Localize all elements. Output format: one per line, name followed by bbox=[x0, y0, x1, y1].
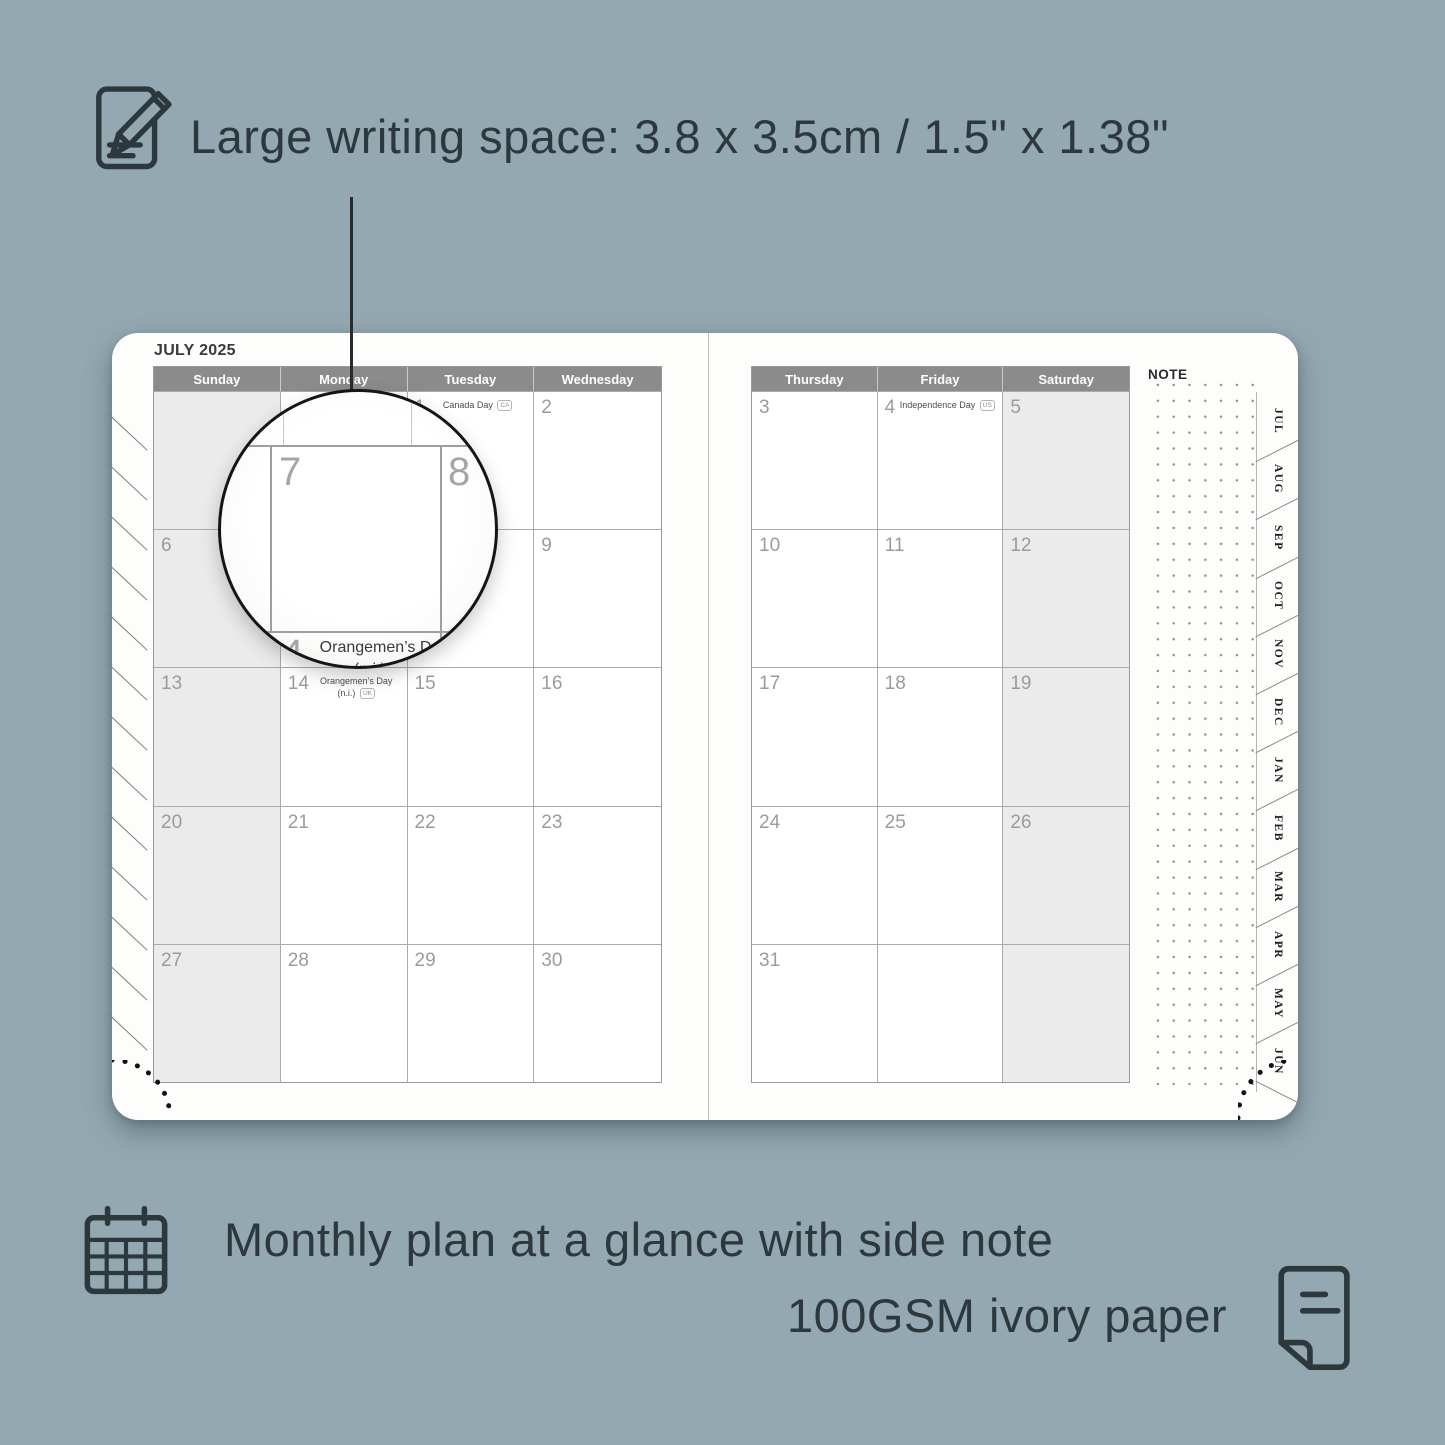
hatch-line bbox=[107, 963, 147, 1001]
grid-line bbox=[411, 392, 412, 445]
day-number: 15 bbox=[415, 673, 436, 695]
magnified-cell-border bbox=[440, 445, 442, 669]
day-cell: 12 bbox=[1003, 530, 1129, 667]
week-row: 171819 bbox=[752, 667, 1129, 805]
day-number: 5 bbox=[1010, 397, 1021, 419]
day-cell: 23 bbox=[534, 807, 661, 944]
hatch-line bbox=[107, 863, 147, 901]
day-number: 23 bbox=[541, 812, 562, 834]
weekday-header-row: ThursdayFridaySaturday bbox=[752, 367, 1129, 391]
hatch-line bbox=[107, 613, 147, 651]
month-tab-strip: JULAUGSEPOCTNOVDECJANFEBMARAPRMAYJUN bbox=[1256, 392, 1299, 1092]
magnified-day-8: 8 bbox=[448, 452, 470, 492]
hatch-line bbox=[107, 513, 147, 551]
day-cell: 29 bbox=[408, 945, 535, 1082]
hatch-line bbox=[107, 663, 147, 701]
day-cell: 2 bbox=[534, 392, 661, 529]
day-cell: 3 bbox=[752, 392, 878, 529]
week-row: 34Independence Day US5 bbox=[752, 391, 1129, 529]
day-number: 19 bbox=[1010, 673, 1031, 695]
day-cell: 9 bbox=[534, 530, 661, 667]
page-fold-line bbox=[708, 333, 709, 1120]
holiday-label: Orangemen’s Day (n.i.) UK bbox=[313, 676, 400, 699]
day-number: 27 bbox=[161, 950, 182, 972]
hatch-line bbox=[107, 463, 147, 501]
month-tab-feb: FEB bbox=[1257, 799, 1299, 857]
day-cell: 27 bbox=[154, 945, 281, 1082]
magnified-day-7: 7 bbox=[279, 452, 301, 492]
day-cell: 10 bbox=[752, 530, 878, 667]
stitch-arc-left bbox=[112, 1060, 172, 1120]
hatch-line bbox=[107, 563, 147, 601]
hatch-line bbox=[107, 713, 147, 751]
day-number: 6 bbox=[161, 535, 172, 557]
hatch-line bbox=[107, 913, 147, 951]
day-number: 9 bbox=[541, 535, 552, 557]
country-badge: UK bbox=[360, 688, 375, 699]
day-number: 17 bbox=[759, 673, 780, 695]
day-cell: 5 bbox=[1003, 392, 1129, 529]
holiday-name: Orangemen’s Day bbox=[320, 639, 449, 656]
week-row: 242526 bbox=[752, 806, 1129, 944]
hatch-line bbox=[107, 413, 147, 451]
day-number: 25 bbox=[885, 812, 906, 834]
day-number: 16 bbox=[541, 673, 562, 695]
day-number: 24 bbox=[759, 812, 780, 834]
day-cell: 16 bbox=[534, 668, 661, 805]
day-cell: 26 bbox=[1003, 807, 1129, 944]
week-row: 101112 bbox=[752, 529, 1129, 667]
hatch-line bbox=[107, 763, 147, 801]
day-cell bbox=[1003, 945, 1129, 1082]
day-cell: 31 bbox=[752, 945, 878, 1082]
magnified-cell-border bbox=[221, 445, 495, 447]
day-number: 3 bbox=[759, 397, 770, 419]
day-number: 26 bbox=[1010, 812, 1031, 834]
hatch-line bbox=[107, 813, 147, 851]
writing-icon bbox=[88, 78, 178, 174]
day-cell: 28 bbox=[281, 945, 408, 1082]
day-cell: 25 bbox=[878, 807, 1004, 944]
note-label: NOTE bbox=[1148, 367, 1193, 382]
week-row: 27282930 bbox=[154, 944, 661, 1082]
day-cell: 15 bbox=[408, 668, 535, 805]
day-number: 4 bbox=[885, 397, 896, 419]
day-cell: 13 bbox=[154, 668, 281, 805]
day-cell: 24 bbox=[752, 807, 878, 944]
day-number: 29 bbox=[415, 950, 436, 972]
feature-monthly-plan: Monthly plan at a glance with side note bbox=[224, 1212, 1053, 1267]
day-number: 22 bbox=[415, 812, 436, 834]
day-cell: 19 bbox=[1003, 668, 1129, 805]
stitch-arc-right bbox=[1238, 1060, 1298, 1120]
day-number: 18 bbox=[885, 673, 906, 695]
weekday-header: Monday bbox=[281, 367, 408, 391]
day-number: 28 bbox=[288, 950, 309, 972]
holiday-label: Independence Day US bbox=[899, 400, 995, 412]
day-number: 2 bbox=[541, 397, 552, 419]
weekday-header: Wednesday bbox=[534, 367, 661, 391]
day-number: 10 bbox=[759, 535, 780, 557]
day-cell bbox=[878, 945, 1004, 1082]
weekday-header-row: SundayMondayTuesdayWednesday bbox=[154, 367, 661, 391]
month-title: JULY 2025 bbox=[154, 342, 236, 360]
day-number: 21 bbox=[288, 812, 309, 834]
day-number: 12 bbox=[1010, 535, 1031, 557]
magnifier-circle: 7 8 14 Orangemen’s Day (n.i.) UK bbox=[218, 389, 498, 669]
calendar-right-page: ThursdayFridaySaturday34Independence Day… bbox=[751, 366, 1130, 1083]
day-number: 20 bbox=[161, 812, 182, 834]
grid-line bbox=[283, 392, 284, 445]
day-cell: 17 bbox=[752, 668, 878, 805]
magnified-holiday: Orangemen’s Day (n.i.) UK bbox=[291, 637, 477, 669]
feature-writing-space: Large writing space: 3.8 x 3.5cm / 1.5" … bbox=[190, 109, 1169, 164]
country-badge: US bbox=[980, 400, 995, 411]
day-number: 14 bbox=[288, 673, 309, 695]
note-dot-grid bbox=[1146, 373, 1258, 1085]
day-cell: 30 bbox=[534, 945, 661, 1082]
day-number: 11 bbox=[885, 535, 905, 557]
magnifier-pointer-line bbox=[350, 197, 353, 391]
week-row: 31 bbox=[752, 944, 1129, 1082]
feature-paper: 100GSM ivory paper bbox=[787, 1288, 1227, 1343]
hatch-line bbox=[107, 1013, 147, 1051]
day-cell: 22 bbox=[408, 807, 535, 944]
week-row: 20212223 bbox=[154, 806, 661, 944]
day-cell: 4Independence Day US bbox=[878, 392, 1004, 529]
day-cell: 14Orangemen’s Day (n.i.) UK bbox=[281, 668, 408, 805]
calendar-icon bbox=[80, 1203, 172, 1297]
month-tab-sep: SEP bbox=[1257, 508, 1299, 566]
magnified-cell-border bbox=[270, 445, 272, 631]
product-image: Large writing space: 3.8 x 3.5cm / 1.5" … bbox=[0, 0, 1445, 1445]
page-edge-hatching bbox=[114, 413, 154, 1073]
day-number: 30 bbox=[541, 950, 562, 972]
day-cell: 21 bbox=[281, 807, 408, 944]
day-cell: 11 bbox=[878, 530, 1004, 667]
day-number: 13 bbox=[161, 673, 182, 695]
weekday-header: Saturday bbox=[1003, 367, 1129, 391]
weekday-header: Thursday bbox=[752, 367, 878, 391]
weekday-header: Sunday bbox=[154, 367, 281, 391]
week-row: 1314Orangemen’s Day (n.i.) UK1516 bbox=[154, 667, 661, 805]
holiday-label: Canada Day CA bbox=[429, 400, 526, 412]
weekday-header: Tuesday bbox=[408, 367, 535, 391]
weekday-header: Friday bbox=[878, 367, 1004, 391]
paper-icon bbox=[1272, 1264, 1352, 1374]
day-cell: 18 bbox=[878, 668, 1004, 805]
country-badge: CA bbox=[497, 400, 512, 411]
day-cell: 20 bbox=[154, 807, 281, 944]
day-number: 31 bbox=[759, 950, 780, 972]
